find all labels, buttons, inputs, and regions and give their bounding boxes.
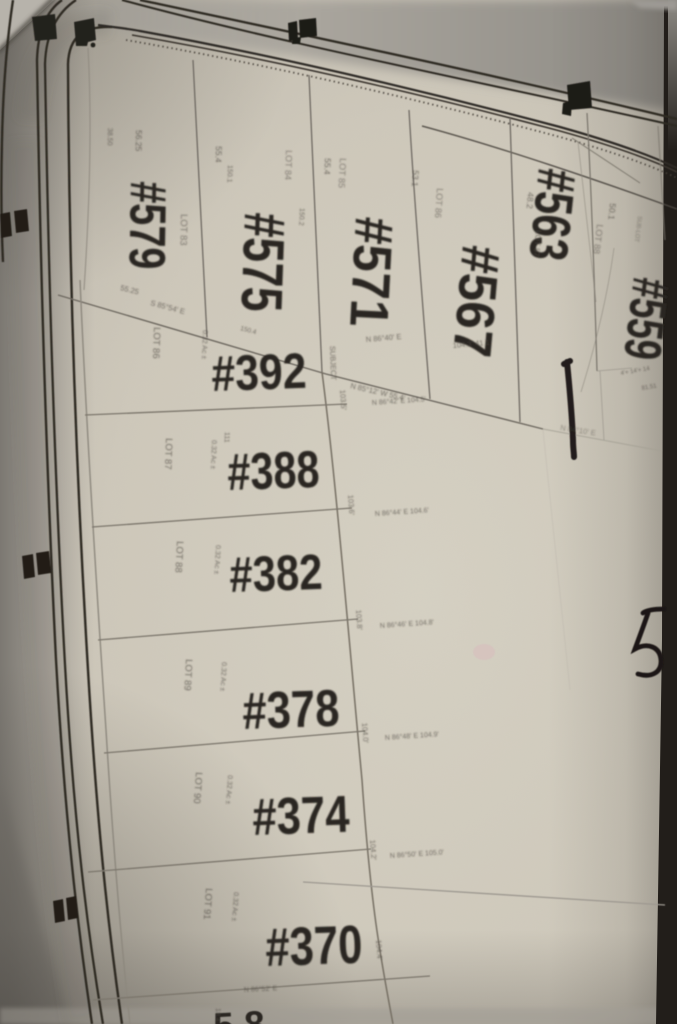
svg-text:#563: #563 xyxy=(517,166,586,264)
svg-text:150.1: 150.1 xyxy=(225,165,233,183)
svg-text:18.4: 18.4 xyxy=(214,1008,221,1022)
svg-text:#374: #374 xyxy=(251,786,350,847)
svg-text:50.1: 50.1 xyxy=(606,203,618,221)
svg-text:LOT 89: LOT 89 xyxy=(181,659,194,691)
svg-text:#392: #392 xyxy=(210,343,307,402)
svg-text:48.2: 48.2 xyxy=(525,192,536,210)
svg-text:#579: #579 xyxy=(118,181,177,270)
svg-text:#388: #388 xyxy=(226,441,320,502)
svg-text:LOT 91: LOT 91 xyxy=(201,888,214,920)
svg-text:55.4: 55.4 xyxy=(213,146,224,163)
svg-text:104.0': 104.0' xyxy=(360,723,370,744)
svg-text:SUBJECT: SUBJECT xyxy=(328,346,338,381)
svg-text:LOT 85: LOT 85 xyxy=(336,158,348,188)
svg-text:0.32 Ac ±: 0.32 Ac ± xyxy=(200,330,208,360)
svg-text:104.2': 104.2' xyxy=(368,840,378,861)
svg-text:38.50: 38.50 xyxy=(106,128,113,146)
svg-text:111: 111 xyxy=(223,432,230,443)
svg-text:150.2: 150.2 xyxy=(297,208,305,226)
svg-text:LOT 88: LOT 88 xyxy=(172,541,185,573)
svg-text:104.4': 104.4' xyxy=(374,940,384,961)
svg-text:#575: #575 xyxy=(229,212,297,313)
svg-text:LOT 86: LOT 86 xyxy=(433,188,445,218)
svg-text:LOT 87: LOT 87 xyxy=(162,438,174,470)
svg-text:#571: #571 xyxy=(338,215,404,328)
svg-text:LOT 90: LOT 90 xyxy=(191,772,204,804)
svg-text:56.25: 56.25 xyxy=(134,130,144,152)
svg-text:#382: #382 xyxy=(228,544,323,603)
svg-text:LOT 84: LOT 84 xyxy=(283,150,294,180)
svg-text:0.32 Ac ±: 0.32 Ac ± xyxy=(209,440,217,470)
svg-text:53.1: 53.1 xyxy=(410,170,421,187)
svg-text:#378: #378 xyxy=(241,680,340,741)
svg-text:#559: #559 xyxy=(612,275,677,363)
svg-text:55.4: 55.4 xyxy=(322,158,333,175)
svg-text:#370: #370 xyxy=(264,915,363,978)
svg-text:103.6': 103.6' xyxy=(346,495,356,516)
svg-text:103.8': 103.8' xyxy=(354,610,364,631)
svg-text:LOT 83: LOT 83 xyxy=(177,214,189,246)
svg-text:103.5': 103.5' xyxy=(338,390,348,411)
svg-text:LOT 86: LOT 86 xyxy=(150,327,162,359)
